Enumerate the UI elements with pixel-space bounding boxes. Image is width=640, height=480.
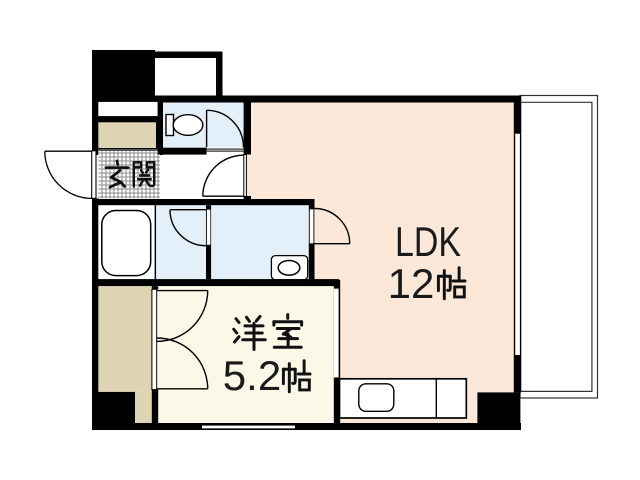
- svg-text:12: 12: [388, 260, 435, 307]
- svg-text:LDK: LDK: [395, 218, 461, 265]
- svg-text:5.2: 5.2: [223, 352, 281, 399]
